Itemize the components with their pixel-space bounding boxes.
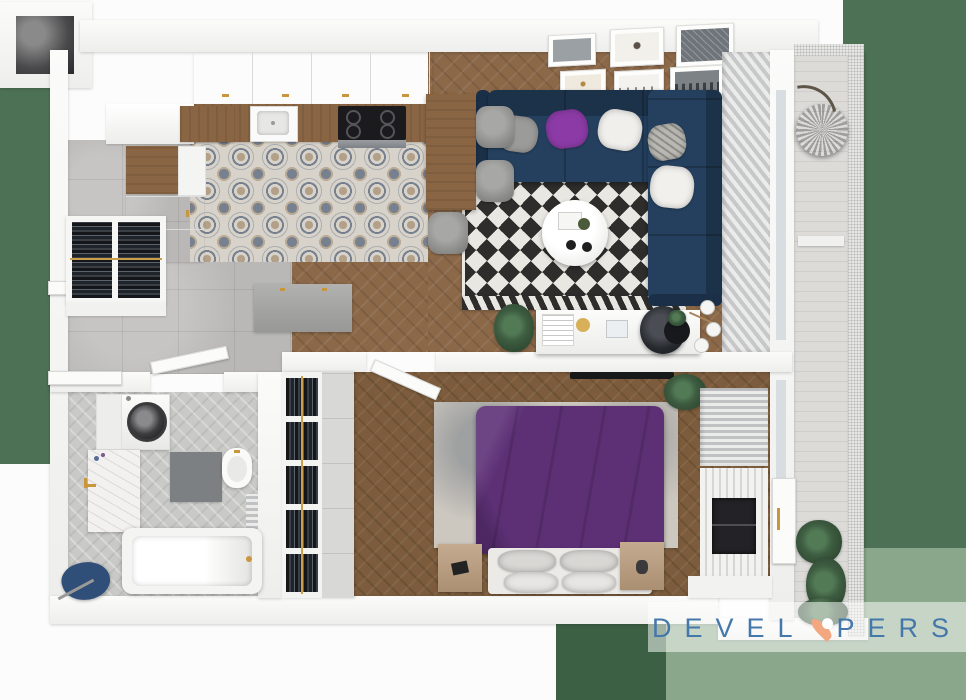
bath-mat	[170, 452, 222, 502]
floor-lamp-globe	[700, 300, 715, 315]
sink-drain	[271, 121, 275, 125]
nightstand-item	[636, 560, 648, 574]
toilet-flush-button	[234, 450, 240, 453]
hob-burner	[346, 110, 361, 125]
bed-duvet	[476, 406, 664, 554]
ground-green-left	[0, 82, 54, 464]
cabinet-handle	[342, 94, 349, 97]
kitchen-cabinet-white-left	[178, 146, 206, 196]
stool-plant	[668, 310, 686, 326]
kitchen-wood-cabinet-upper	[180, 106, 234, 142]
oven-front	[338, 140, 406, 148]
wall-living-bedroom-right	[436, 352, 792, 372]
gallery-frame	[548, 33, 596, 68]
developers-logo: DEVEL PERS	[652, 606, 962, 650]
desk-lamp-gold	[576, 318, 590, 332]
floor-lamp-globe	[694, 338, 709, 353]
hall-wardrobe-ledge	[66, 302, 166, 316]
dining-chair	[476, 106, 514, 148]
kitchen-tile-floor	[190, 140, 432, 264]
bedroom-radiator	[700, 388, 768, 466]
bathtub-interior	[132, 536, 252, 586]
bathtub-faucet	[246, 556, 252, 562]
vanity-faucet-spout	[84, 478, 87, 488]
washing-machine-dial	[126, 396, 131, 401]
wall-bottom	[50, 596, 718, 624]
desk-plant	[494, 304, 534, 352]
balcony-mesh-top	[794, 44, 864, 56]
desk-laptop	[606, 320, 628, 338]
bed-pillow	[498, 550, 556, 572]
toilet-seat	[227, 456, 247, 482]
bed-pillow	[504, 572, 558, 592]
window-glass-living	[776, 90, 786, 340]
coffee-table-bowl	[582, 242, 592, 252]
balcony-door	[772, 478, 796, 564]
bedroom-tv	[570, 372, 674, 379]
bed-pillow	[560, 550, 618, 572]
coffee-table-bowl	[566, 240, 576, 250]
balcony-shelf	[798, 236, 844, 246]
fireplace-niche	[712, 498, 756, 554]
bench-knob	[322, 288, 327, 291]
hall-wardrobe-clothes	[72, 222, 112, 298]
desk-papers	[542, 314, 574, 346]
coffee-table-plant	[578, 218, 590, 230]
balcony-plant	[796, 520, 842, 564]
coffee-table	[542, 200, 608, 266]
wall-living-bedroom-left	[282, 352, 366, 372]
balcony-door-handle	[777, 508, 780, 530]
dining-table	[426, 94, 476, 210]
hob-burner	[346, 124, 361, 139]
cabinet-handle	[402, 94, 409, 97]
bench-knob	[280, 288, 285, 291]
gallery-frame	[610, 27, 664, 68]
vanity-bottle	[101, 453, 105, 457]
balcony-mesh-railing	[848, 52, 864, 636]
fireplace-shelf	[712, 524, 756, 526]
bathroom-vanity	[88, 450, 140, 532]
dining-chair	[428, 212, 468, 254]
bedroom-wardrobe-doors	[322, 372, 354, 598]
hall-bench	[254, 284, 352, 332]
location-pin-icon	[808, 616, 834, 642]
bedroom-wardrobe-rod	[301, 376, 303, 594]
dining-chair	[476, 160, 514, 202]
hob-burner	[380, 124, 395, 139]
floor-plan-render: DEVEL PERS	[0, 0, 966, 700]
cabinet-handle	[282, 94, 289, 97]
vanity-bottle	[94, 456, 99, 461]
washing-machine-drum	[127, 402, 167, 442]
hob-burner	[380, 110, 395, 125]
logo-text-right: PERS	[836, 615, 962, 642]
cabinet-handle	[222, 94, 229, 97]
wall-left	[50, 50, 68, 598]
floor-lamp-globe	[706, 322, 721, 337]
cabinet-handle	[186, 210, 189, 217]
hall-wardrobe-clothes	[118, 222, 160, 298]
window-blinds-living	[722, 52, 770, 352]
logo-text-left: DEVEL	[652, 615, 806, 642]
kitchen-upper-cabinets	[194, 52, 432, 104]
hall-wardrobe-rod	[70, 258, 162, 260]
bed-pillow	[562, 572, 616, 592]
kitchen-wood-cabinet-left	[126, 146, 178, 194]
bedroom-corner-block	[688, 576, 772, 598]
left-wall-door-leaf	[48, 371, 122, 385]
bathroom-side-counter	[96, 394, 122, 450]
